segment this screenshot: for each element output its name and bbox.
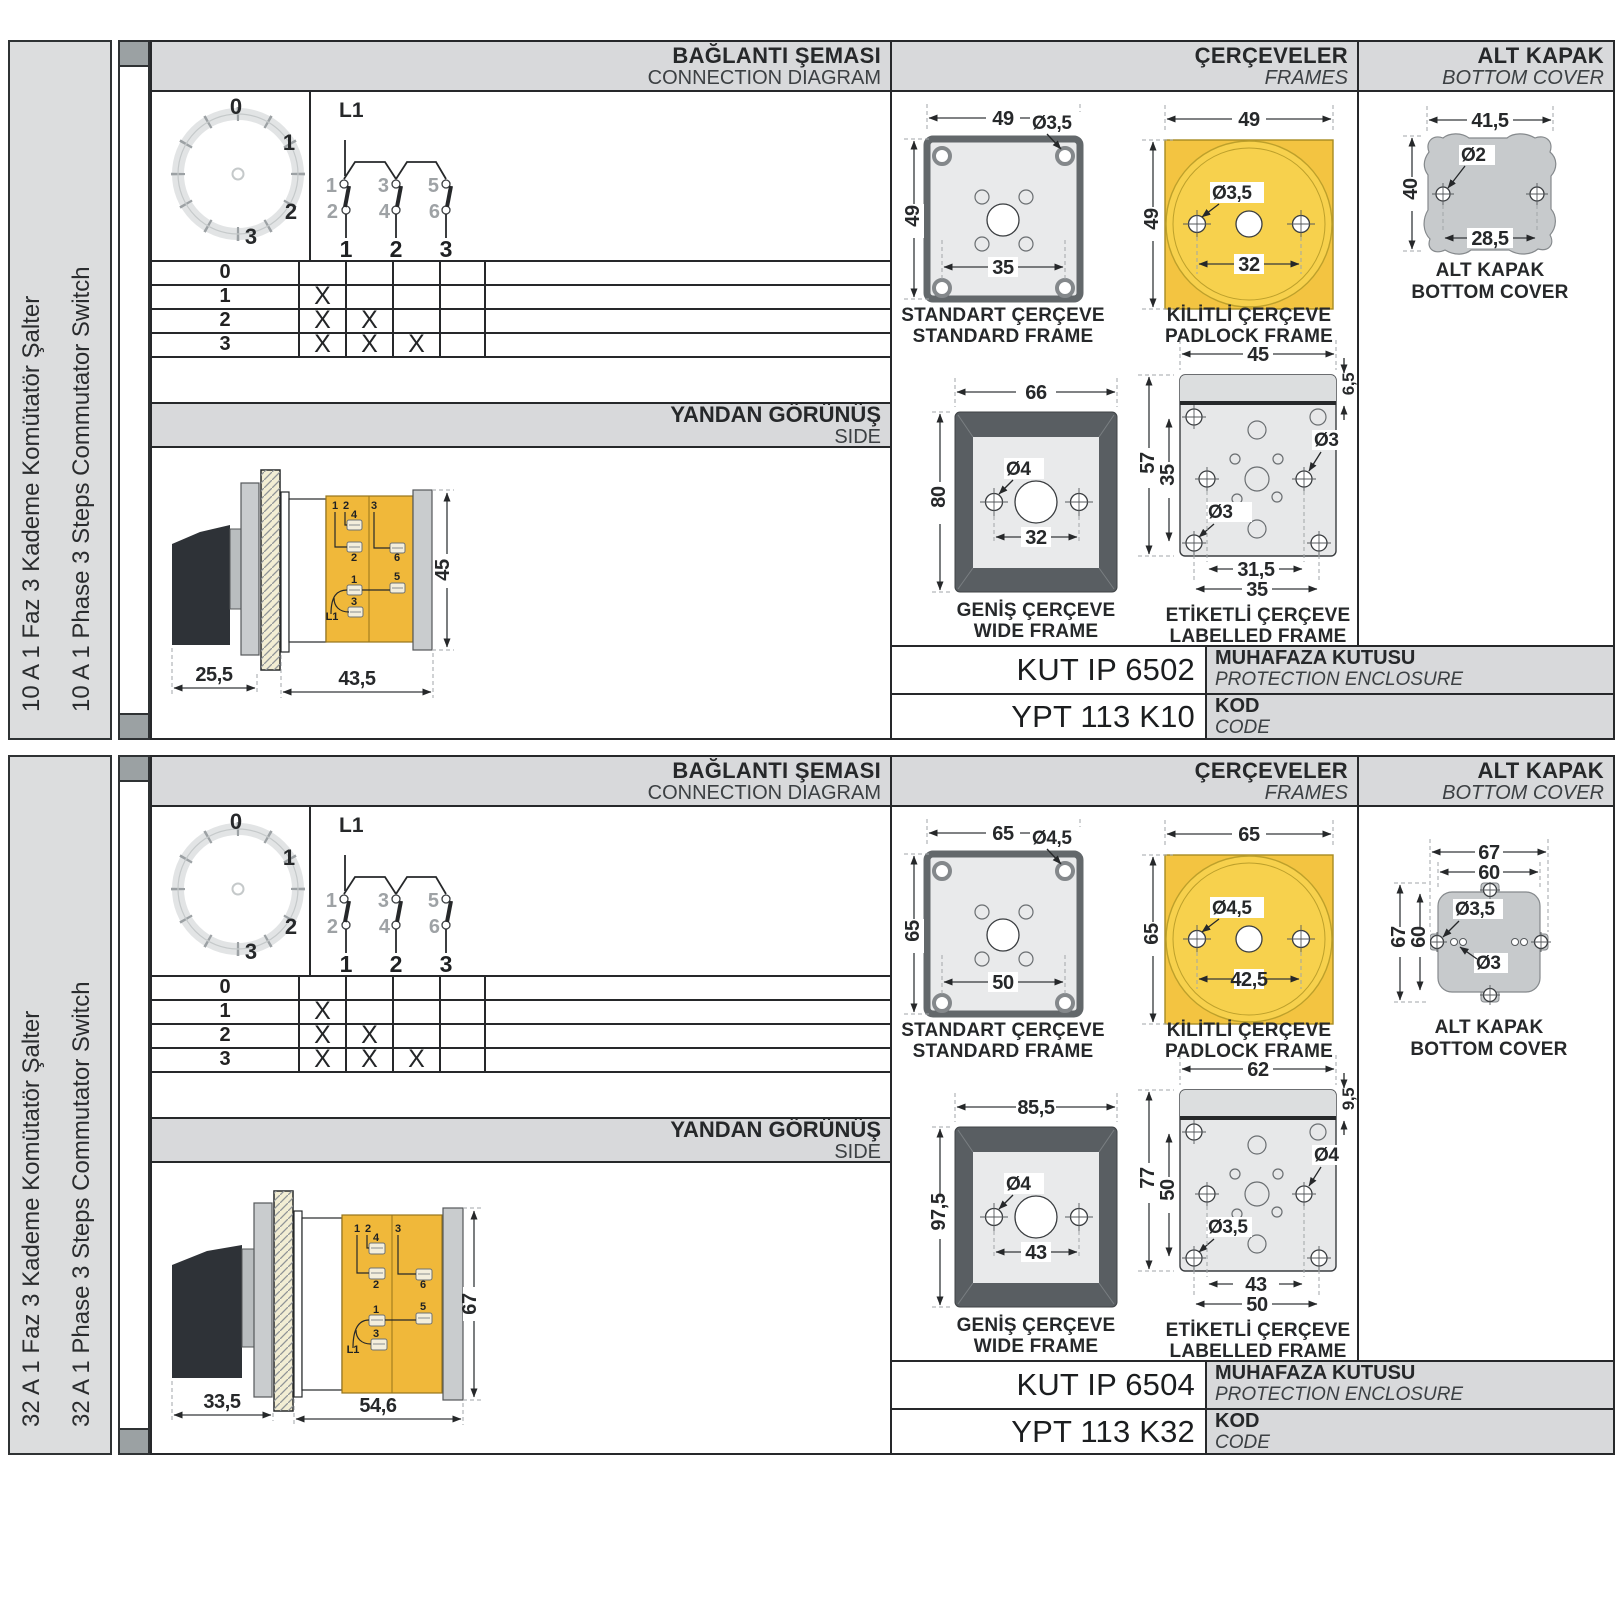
frame-caption-tr: ETİKETLİ ÇERÇEVE [1166,605,1351,626]
product-name-english: 32 A 1 Phase 3 Steps Commutator Switch [68,981,96,1427]
section-title-tr: BAĞLANTI ŞEMASI [152,44,881,67]
wide-frame-drawing: 66 80 Ø4 32 GENİŞ ÇERÇEVE WIDE FRAME [928,378,1117,642]
frames-drawings: 65 Ø4,5 65 50 STANDART ÇERÇEVE STAND [892,807,1357,1360]
terminal-number: 3 [395,1223,401,1235]
contact-number: 5 [428,890,439,912]
section-title-tr: BAĞLANTI ŞEMASI [152,759,881,782]
header-bottom-cover: ALT KAPAK BOTTOM COVER [1359,42,1613,90]
frame-caption-tr: STANDART ÇERÇEVE [901,305,1104,326]
contact-mark [345,977,392,999]
terminal-number: L1 [326,611,339,623]
side-view-title-tr: YANDAN GÖRÜNÜŞ [152,404,881,426]
dim-hole-diameter: Ø4,5 [1212,898,1252,919]
contact-mark-empty [439,1049,486,1071]
step-label: 1 [152,1001,298,1023]
dim-hole-span-2: 50 [1246,1294,1268,1316]
dim-cover-height-outer: 67 [1388,926,1410,948]
dim-hole-diameter-left: Ø3,5 [1208,1217,1248,1238]
dim-cover-height: 40 [1400,178,1422,200]
section-title-en: FRAMES [892,782,1348,805]
dim-frame-height: 49 [902,205,924,227]
product-panel: 10 A 1 Faz 3 Kademe Komütatör Şalter 10 … [0,40,1623,740]
section-title-tr: ÇERÇEVELER [892,759,1348,782]
dim-frame-width: 49 [1238,109,1260,131]
table-row: 3 X X X [152,332,890,356]
step-label: 2 [152,310,298,332]
side-view-title-en: SIDE [152,426,881,448]
selector-dial: 0 1 2 3 [178,809,298,964]
side-view-drawing: 1 2 4 2 3 6 1 5 3 L1 [152,1163,890,1455]
datasheet-body: 0 1 2 3 L1 [152,92,1613,738]
dim-hole-diameter: Ø4 [1006,459,1031,480]
table-row: 0 [152,975,890,999]
switch-side-profile: 1 2 4 2 3 6 1 5 3 L1 [172,1191,463,1411]
contact-mark-empty [439,1025,486,1047]
dim-hole-diameter: Ø3,5 [1032,113,1072,134]
dim-cover-height-inner: 60 [1408,926,1430,948]
table-bottom-rule [152,1071,890,1073]
contact-mark-empty [439,334,486,356]
contact-mark: X [298,1001,345,1023]
dim-frame-width: 65 [992,823,1014,845]
dim-cover-width: 41,5 [1471,110,1509,132]
contact-number: 3 [378,175,389,197]
contact-mark [392,262,439,284]
dim-hole-diameter-right: Ø3 [1314,430,1339,451]
enclosure-row: KUT IP 6502 MUHAFAZA KUTUSU PROTECTION E… [892,647,1613,693]
dim-hole-diameter: Ø4,5 [1032,828,1072,849]
frame-caption-en: STANDARD FRAME [913,1041,1094,1062]
terminal-number: 2 [343,500,349,512]
connection-diagram-section: 0 1 2 3 L1 [152,807,892,1453]
contact-mark [298,262,345,284]
dim-hole-span: 35 [992,257,1014,279]
cover-caption-tr: ALT KAPAK [1436,260,1545,281]
dim-frame-width: 66 [1025,382,1047,404]
contact-mark: X [298,310,345,332]
enclosure-label-tr: MUHAFAZA KUTUSU [1215,648,1613,669]
contact-mark-empty [439,262,486,284]
contact-number: 4 [379,916,391,938]
dim-frame-width: 49 [992,108,1014,130]
contact-mark: X [298,286,345,308]
standard-frame-drawing: 49 Ø3,5 49 35 STANDART ÇERÇEVE STAND [901,104,1104,347]
dim-hole-span: 50 [992,972,1014,994]
enclosure-label-en: PROTECTION ENCLOSURE [1215,669,1613,690]
enclosure-label: MUHAFAZA KUTUSU PROTECTION ENCLOSURE [1205,1362,1613,1408]
product-code: YPT 113 K32 [892,1410,1205,1453]
frame-caption-tr: GENİŞ ÇERÇEVE [957,600,1116,621]
enclosure-code: KUT IP 6502 [892,647,1205,693]
contact-mark [392,1001,439,1023]
dim-hole-span: 28,5 [1471,228,1509,250]
bottom-cover-section: 41,5 40 Ø2 28,5 ALT KAPAK BOTTOM COV [1359,92,1613,647]
contact-mark: X [345,1049,392,1071]
dim-hole-diameter-left: Ø3 [1208,502,1233,523]
frames-drawings: 49 Ø3,5 49 35 STANDART ÇERÇEVE STAND [892,92,1357,645]
padlock-frame-drawing: 49 49 Ø3,5 32 KİLİTLİ ÇERÇEVE PADLOC [1141,105,1333,347]
switch-schematic: L1 1 2 3 [326,99,453,260]
code-label-tr: KOD [1215,1411,1613,1432]
terminal-number: 2 [351,552,357,564]
contact-number: 6 [429,201,440,223]
code-row: YPT 113 K10 KOD CODE [892,693,1613,738]
dim-inner-height: 35 [1157,464,1179,486]
section-title-en: BOTTOM COVER [1359,782,1604,805]
phase-input-label: L1 [339,814,364,837]
side-label-bar: 10 A 1 Faz 3 Kademe Komütatör Şalter 10 … [8,40,112,740]
dim-hole-span-1: 31,5 [1237,559,1275,581]
contact-number: 4 [379,201,391,223]
enclosure-code: KUT IP 6504 [892,1362,1205,1408]
table-row: 0 [152,260,890,284]
enclosure-label-tr: MUHAFAZA KUTUSU [1215,1363,1613,1384]
padlock-frame-drawing: 65 65 Ø4,5 42,5 KİLİTLİ ÇERÇEVE PADL [1141,820,1333,1062]
section-headers: BAĞLANTI ŞEMASI CONNECTION DIAGRAM ÇERÇE… [152,42,1613,92]
connection-diagram-section: 0 1 2 3 L1 [152,92,892,738]
bottom-cover-drawings: 41,5 40 Ø2 28,5 ALT KAPAK BOTTOM COV [1359,92,1613,645]
cover-caption-en: BOTTOM COVER [1411,282,1568,303]
dim-frame-width: 65 [1238,824,1260,846]
switch-schematic: L1 1 2 3 [326,814,453,975]
contact-number: 1 [326,175,337,197]
contact-number: 5 [428,175,439,197]
section-title-en: CONNECTION DIAGRAM [152,782,881,805]
terminal-number: 6 [420,1279,426,1291]
terminal-number: 6 [394,552,400,564]
output-number: 1 [340,236,353,260]
binding-strip [118,755,150,1455]
labelled-frame-drawing: 62 9,5 77 50 Ø4 [1137,1055,1357,1360]
contact-mark [345,262,392,284]
step-label: 3 [152,1049,298,1071]
product-name-turkish: 32 A 1 Faz 3 Kademe Komütatör Şalter [18,1011,46,1427]
frame-caption-en: WIDE FRAME [974,621,1098,642]
frame-caption-tr: STANDART ÇERÇEVE [901,1020,1104,1041]
contact-mark: X [298,1049,345,1071]
dim-strip-height: 9,5 [1339,1088,1357,1110]
dial-position-label: 1 [283,130,295,155]
dim-hole-span: 32 [1025,527,1047,549]
binding-strip-mark-top [118,40,150,67]
dial-position-label: 0 [230,94,242,119]
side-label-bar: 32 A 1 Faz 3 Kademe Komütatör Şalter 32 … [8,755,112,1455]
terminal-number: 3 [351,596,357,608]
dim-label-handle: 33,5 [203,1391,241,1413]
dim-hole-diameter-1: Ø3,5 [1455,899,1495,920]
dim-cover-width-outer: 67 [1478,842,1500,864]
binding-strip-mark-top [118,755,150,782]
terminal-number: 2 [373,1279,379,1291]
dial-position-label: 3 [245,939,257,964]
terminal-number: 5 [394,571,400,583]
dim-label-height: 45 [432,559,454,581]
bottom-cover-b-drawing: 67 60 Ø3,5 Ø3 67 [1388,839,1568,1060]
side-view-title-en: SIDE [152,1141,881,1163]
section-title-en: FRAMES [892,67,1348,90]
section-title-tr: ALT KAPAK [1359,44,1604,67]
dial-and-schematic-drawing: 0 1 2 3 L1 [152,92,890,260]
dim-label-body: 54,6 [359,1395,397,1417]
step-label: 0 [152,977,298,999]
header-connection-diagram: BAĞLANTI ŞEMASI CONNECTION DIAGRAM [152,42,892,90]
dim-frame-height: 80 [928,486,950,508]
section-title-en: CONNECTION DIAGRAM [152,67,881,90]
frames-section: 65 Ø4,5 65 50 STANDART ÇERÇEVE STAND [892,807,1359,1362]
dial-position-label: 0 [230,809,242,834]
bottom-cover-a-drawing: 41,5 40 Ø2 28,5 ALT KAPAK BOTTOM COV [1400,106,1569,303]
contact-mark-empty [439,310,486,332]
contact-mark [298,977,345,999]
dim-frame-height: 65 [1141,923,1163,945]
dial-position-label: 2 [285,199,297,224]
product-panel: 32 A 1 Faz 3 Kademe Komütatör Şalter 32 … [0,755,1623,1455]
contact-number: 6 [429,916,440,938]
dim-frame-height: 57 [1137,452,1159,474]
dim-label-handle: 25,5 [195,664,233,686]
terminal-number: 2 [365,1223,371,1235]
side-view-drawing: 1 2 4 2 3 6 1 5 3 L1 [152,448,890,740]
contact-mark [392,310,439,332]
section-title-en: BOTTOM COVER [1359,67,1604,90]
dial-position-label: 3 [245,224,257,249]
side-view-header: YANDAN GÖRÜNÜŞ SIDE [152,1117,890,1163]
contact-mark: X [345,310,392,332]
enclosure-label-en: PROTECTION ENCLOSURE [1215,1384,1613,1405]
contact-mark: X [392,1049,439,1071]
frame-caption-tr: KİLİTLİ ÇERÇEVE [1167,1020,1332,1041]
datasheet-body: 0 1 2 3 L1 [152,807,1613,1453]
dim-frame-height: 77 [1137,1167,1159,1189]
datasheet-card: BAĞLANTI ŞEMASI CONNECTION DIAGRAM ÇERÇE… [150,40,1615,740]
dial-position-label: 1 [283,845,295,870]
product-code: YPT 113 K10 [892,695,1205,738]
side-view-header: YANDAN GÖRÜNÜŞ SIDE [152,402,890,448]
enclosure-label: MUHAFAZA KUTUSU PROTECTION ENCLOSURE [1205,647,1613,693]
output-number: 3 [440,236,453,260]
header-frames: ÇERÇEVELER FRAMES [892,757,1359,805]
dial-and-schematic-drawing: 0 1 2 3 L1 [152,807,890,975]
frame-caption-tr: GENİŞ ÇERÇEVE [957,1315,1116,1336]
contact-mark: X [298,334,345,356]
table-row: 3 X X X [152,1047,890,1071]
contact-mark-empty [439,1001,486,1023]
header-frames: ÇERÇEVELER FRAMES [892,42,1359,90]
code-label-tr: KOD [1215,696,1613,717]
contact-mark-empty [439,286,486,308]
frame-caption-tr: ETİKETLİ ÇERÇEVE [1166,1320,1351,1341]
dim-frame-width: 62 [1247,1059,1269,1081]
dim-hole-span-2: 35 [1246,579,1268,601]
binding-strip-mark-bottom [118,713,150,740]
step-label: 3 [152,334,298,356]
dim-frame-height: 65 [902,920,924,942]
dim-hole-diameter: Ø3,5 [1212,183,1252,204]
step-label: 1 [152,286,298,308]
switching-table: 0 1 X 2 X [152,260,890,358]
side-view-title-tr: YANDAN GÖRÜNÜŞ [152,1119,881,1141]
code-label: KOD CODE [1205,695,1613,738]
terminal-number: 4 [351,509,358,521]
contact-number: 1 [326,890,337,912]
code-row: YPT 113 K32 KOD CODE [892,1408,1613,1453]
enclosure-row: KUT IP 6504 MUHAFAZA KUTUSU PROTECTION E… [892,1362,1613,1408]
dim-hole-span: 32 [1238,254,1260,276]
dim-label-body: 43,5 [338,668,376,690]
cover-caption-tr: ALT KAPAK [1435,1017,1544,1038]
table-row: 1 X [152,999,890,1023]
output-number: 1 [340,951,353,975]
contact-mark [392,286,439,308]
section-title-tr: ALT KAPAK [1359,759,1604,782]
bottom-cover-drawings: ALT KAPAK BOTTOM COVER [1359,807,1613,1360]
header-bottom-cover: ALT KAPAK BOTTOM COVER [1359,757,1613,805]
table-bottom-rule [152,356,890,358]
product-name-turkish: 10 A 1 Faz 3 Kademe Komütatör Şalter [18,296,46,712]
switching-table: 0 1 X 2 X [152,975,890,1073]
terminal-number: 1 [373,1304,379,1316]
dim-hole-diameter-right: Ø4 [1314,1145,1339,1166]
contact-number: 2 [327,201,338,223]
contact-mark [345,286,392,308]
bottom-cover-section: ALT KAPAK BOTTOM COVER [1359,807,1613,1362]
output-number: 2 [390,951,403,975]
contact-number: 3 [378,890,389,912]
switch-side-profile: 1 2 4 2 3 6 1 5 3 L1 [172,470,432,670]
code-label-en: CODE [1215,717,1613,738]
dim-cover-width-inner: 60 [1478,862,1500,884]
terminal-number: 1 [354,1223,360,1235]
output-number: 2 [390,236,403,260]
frame-caption-en: LABELLED FRAME [1170,1341,1347,1360]
dim-hole-diameter: Ø4 [1006,1174,1031,1195]
contact-number: 2 [327,916,338,938]
contact-mark: X [345,334,392,356]
dim-hole-diameter-2: Ø3 [1476,953,1501,974]
wide-frame-drawing: 85,5 97,5 Ø4 43 GENİŞ ÇERÇEVE WIDE F [928,1093,1117,1357]
binding-strip-mark-bottom [118,1428,150,1455]
binding-strip [118,40,150,740]
dim-frame-width: 45 [1247,344,1269,366]
frame-caption-en: LABELLED FRAME [1170,626,1347,645]
frames-section: 49 Ø3,5 49 35 STANDART ÇERÇEVE STAND [892,92,1359,647]
terminal-number: 1 [332,500,338,512]
table-row: 1 X [152,284,890,308]
step-label: 0 [152,262,298,284]
code-label-en: CODE [1215,1432,1613,1453]
dim-label-height: 67 [459,1293,481,1315]
terminal-number: L1 [347,1344,360,1356]
dim-frame-height: 97,5 [928,1193,950,1231]
contact-mark [392,977,439,999]
cover-caption-en: BOTTOM COVER [1410,1039,1567,1060]
contact-mark: X [345,1025,392,1047]
labelled-frame-drawing: 45 6,5 57 35 Ø3 [1137,340,1357,645]
output-number: 3 [440,951,453,975]
terminal-number: 5 [420,1301,426,1313]
terminal-number: 3 [371,500,377,512]
terminal-number: 1 [351,574,357,586]
dim-hole-span: 43 [1025,1242,1047,1264]
dim-hole-span: 42,5 [1230,969,1268,991]
phase-input-label: L1 [339,99,364,122]
dim-inner-height: 50 [1157,1179,1179,1201]
contact-mark: X [392,334,439,356]
product-name-english: 10 A 1 Phase 3 Steps Commutator Switch [68,266,96,712]
code-label: KOD CODE [1205,1410,1613,1453]
frame-caption-en: STANDARD FRAME [913,326,1094,347]
dim-frame-height: 49 [1141,208,1163,230]
section-headers: BAĞLANTI ŞEMASI CONNECTION DIAGRAM ÇERÇE… [152,757,1613,807]
table-row: 2 X X [152,308,890,332]
contact-mark: X [298,1025,345,1047]
datasheet-card: BAĞLANTI ŞEMASI CONNECTION DIAGRAM ÇERÇE… [150,755,1615,1455]
section-title-tr: ÇERÇEVELER [892,44,1348,67]
dim-strip-height: 6,5 [1339,373,1357,395]
step-label: 2 [152,1025,298,1047]
dim-frame-width: 85,5 [1017,1097,1055,1119]
dial-position-label: 2 [285,914,297,939]
contact-mark [345,1001,392,1023]
frame-caption-en: WIDE FRAME [974,1336,1098,1357]
terminal-number: 4 [373,1232,380,1244]
terminal-number: 3 [373,1328,379,1340]
table-row: 2 X X [152,1023,890,1047]
dim-hole-span-1: 43 [1245,1274,1267,1296]
contact-mark-empty [439,977,486,999]
contact-mark [392,1025,439,1047]
standard-frame-drawing: 65 Ø4,5 65 50 STANDART ÇERÇEVE STAND [901,819,1104,1062]
dim-hole-diameter: Ø2 [1461,145,1486,166]
header-connection-diagram: BAĞLANTI ŞEMASI CONNECTION DIAGRAM [152,757,892,805]
frame-caption-tr: KİLİTLİ ÇERÇEVE [1167,305,1332,326]
selector-dial: 0 1 2 3 [178,94,298,249]
